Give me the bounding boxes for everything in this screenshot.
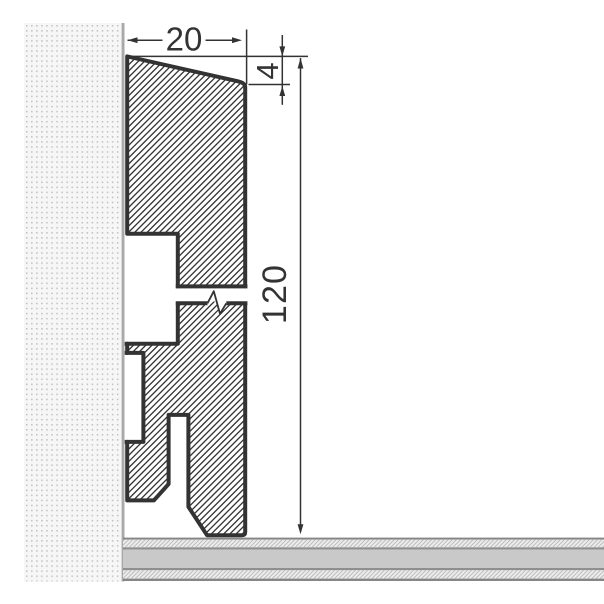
svg-text:120: 120 (256, 264, 294, 324)
svg-text:4: 4 (250, 62, 285, 79)
svg-text:20: 20 (166, 20, 203, 57)
